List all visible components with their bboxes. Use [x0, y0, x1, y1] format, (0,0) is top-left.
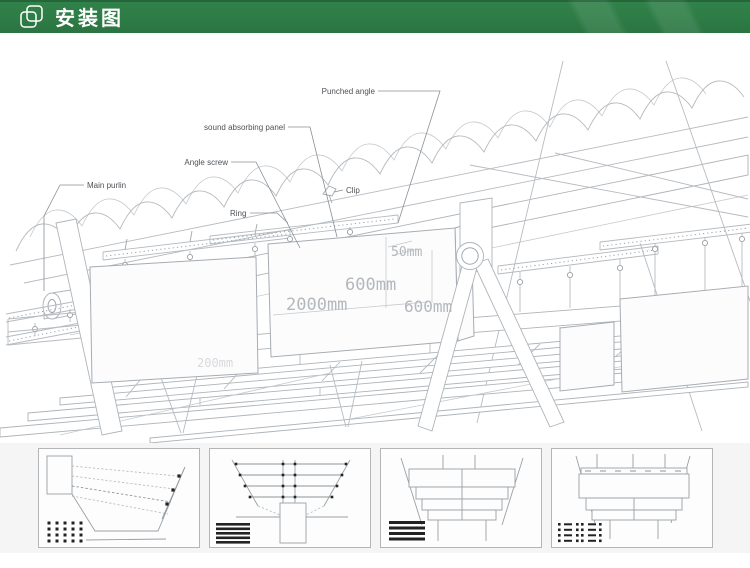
dim-grid-spacing: 200mm [197, 356, 233, 370]
page-title: 安装图 [55, 2, 124, 31]
install-step-thumbnail-2 [209, 448, 371, 548]
grid-nodes [234, 463, 347, 499]
overlap-squares-icon [19, 4, 45, 30]
baffle-stack-detail-view [552, 449, 712, 547]
baffle-stack-front-view [381, 449, 541, 547]
install-step-thumbnail-3 [380, 448, 542, 548]
label-ring: Ring [230, 209, 246, 218]
label-clip: Clip [346, 186, 360, 195]
dim-panel-height: 600mm [345, 275, 396, 295]
dim-panel-length: 2000mm [286, 295, 347, 315]
section-header: 安装图 [0, 0, 750, 33]
dot-dash-legend [558, 523, 602, 542]
dim-panel-thickness: 50mm [391, 245, 422, 260]
label-sound-absorbing-panel: sound absorbing panel [204, 123, 285, 132]
dot-grid-legend [47, 522, 82, 543]
bar-legend [216, 523, 250, 544]
suspension-grid-top-view [210, 449, 370, 547]
label-punched-angle: Punched angle [322, 87, 376, 96]
installation-diagram: Punched angle sound absorbing panel Angl… [0, 53, 750, 443]
install-steps-strip [0, 443, 750, 553]
installation-diagram-drawing: Punched angle sound absorbing panel Angl… [0, 53, 750, 443]
install-step-thumbnail-1 [38, 448, 200, 548]
dim-panel-spacing: 600mm [404, 297, 452, 316]
install-step-thumbnail-4 [551, 448, 713, 548]
bar-legend [389, 521, 425, 541]
label-angle-screw: Angle screw [184, 158, 228, 167]
label-main-purlin: Main purlin [87, 181, 126, 190]
hanging-wires-side-view [39, 449, 199, 547]
